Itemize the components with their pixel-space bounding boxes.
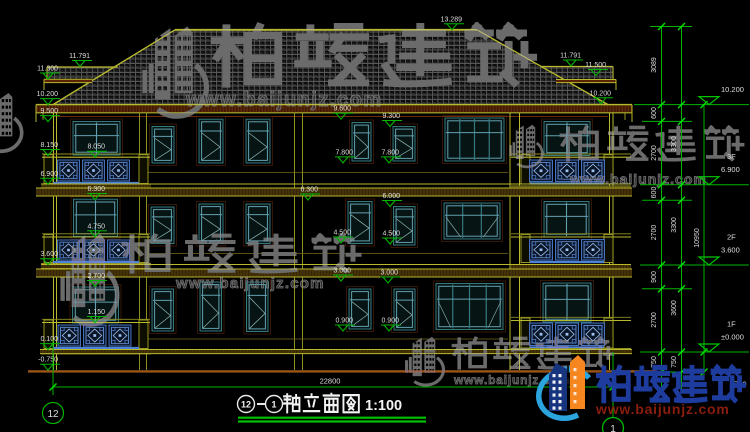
svg-text:6.000: 6.000 [382,193,400,200]
svg-text:11.791: 11.791 [69,53,90,60]
svg-text:4.500: 4.500 [333,230,351,237]
svg-text:22800: 22800 [320,377,341,386]
svg-text:1: 1 [610,424,616,432]
svg-text:-0.750: -0.750 [38,357,58,364]
svg-text:600: 600 [651,187,658,199]
svg-text:1.150: 1.150 [87,309,105,316]
svg-text:3.600: 3.600 [721,246,740,255]
svg-text:6.900: 6.900 [40,171,58,178]
svg-text:0.900: 0.900 [335,318,353,325]
svg-text:8.150: 8.150 [40,142,58,149]
svg-text:2700: 2700 [651,225,658,241]
svg-text:±0.000: ±0.000 [721,333,744,342]
svg-text:9.500: 9.500 [40,108,58,115]
svg-text:9.300: 9.300 [382,113,400,120]
svg-text:12: 12 [241,400,251,410]
svg-text:900: 900 [651,271,658,283]
svg-text:4.750: 4.750 [87,223,105,230]
svg-text:2.700: 2.700 [87,273,105,280]
svg-text:10.200: 10.200 [590,90,612,97]
svg-text:11.500: 11.500 [585,62,606,69]
svg-text:3.000: 3.000 [380,270,398,277]
svg-text:4.500: 4.500 [382,231,400,238]
svg-text:9.600: 9.600 [333,106,351,113]
svg-text:www.baijunjz.com: www.baijunjz.com [595,401,730,417]
svg-text:10.200: 10.200 [37,91,59,98]
svg-text:2F: 2F [727,233,736,242]
svg-text:0.900: 0.900 [381,318,399,325]
svg-text:12: 12 [47,409,59,420]
svg-text:www.baijunjz.com: www.baijunjz.com [185,89,383,111]
svg-text:3300: 3300 [671,136,678,152]
svg-text:1:100: 1:100 [365,398,402,414]
svg-text:10.200: 10.200 [721,85,744,94]
svg-text:11.791: 11.791 [560,53,581,60]
svg-text:7.800: 7.800 [335,149,353,156]
svg-text:3300: 3300 [671,217,678,233]
svg-text:6.900: 6.900 [721,165,740,174]
svg-text:2700: 2700 [651,312,658,328]
svg-text:1F: 1F [727,320,736,329]
svg-text:3F: 3F [727,152,736,161]
svg-text:1: 1 [271,400,276,410]
svg-text:3600: 3600 [671,300,678,316]
svg-text:3.600: 3.600 [40,251,58,258]
svg-text:3089: 3089 [651,57,658,73]
svg-text:11.300: 11.300 [37,66,58,73]
svg-text:2700: 2700 [651,145,658,161]
svg-text:7.800: 7.800 [381,149,399,156]
svg-text:3.000: 3.000 [333,268,351,275]
svg-text:0.100: 0.100 [40,336,58,343]
svg-text:750: 750 [671,356,678,368]
svg-text:www.baijunjz.com: www.baijunjz.com [175,275,325,292]
svg-text:13.289: 13.289 [441,16,463,23]
svg-text:8.050: 8.050 [87,144,105,151]
svg-text:6.300: 6.300 [87,186,105,193]
svg-text:6.300: 6.300 [300,187,318,194]
svg-text:600: 600 [651,107,658,119]
svg-text:10950: 10950 [694,228,701,248]
